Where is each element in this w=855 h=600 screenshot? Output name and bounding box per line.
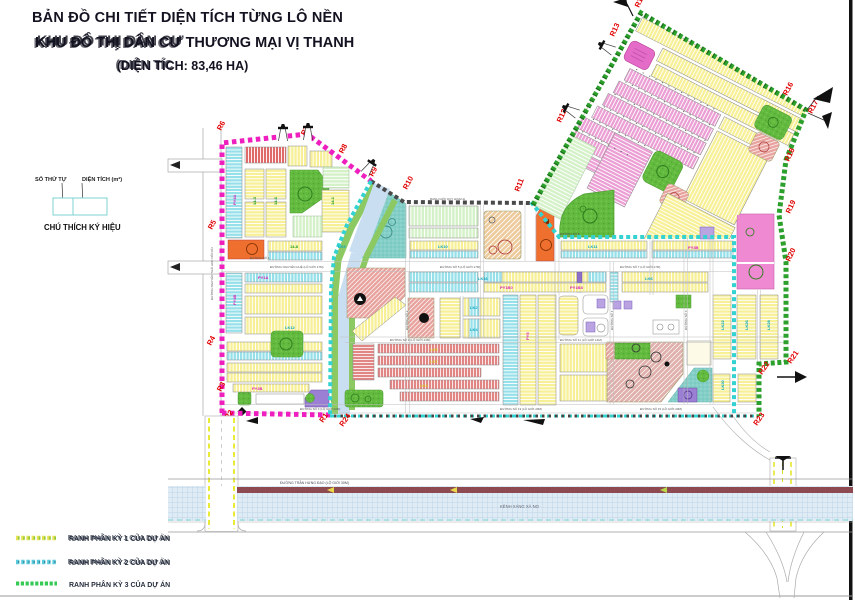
svg-text:RANH PHÂN KỲ 2 CỦA DỰ ÁN: RANH PHÂN KỲ 2 CỦA DỰ ÁN — [68, 557, 169, 566]
svg-text:RANH PHÂN KỲ 3 CỦA DỰ ÁN: RANH PHÂN KỲ 3 CỦA DỰ ÁN — [69, 580, 170, 589]
svg-text:14-8: 14-8 — [290, 244, 299, 249]
svg-text:KHU ĐÔ THỊ DÂN CƯ: KHU ĐÔ THỊ DÂN CƯ — [34, 34, 182, 52]
svg-text:ĐƯỜNG SỐ 3 (LỘ GIỚI 20M): ĐƯỜNG SỐ 3 (LỘ GIỚI 20M) — [300, 406, 340, 411]
svg-text:RANH GIỚI QUY HOẠCH: RANH GIỚI QUY HOẠCH — [430, 196, 465, 201]
svg-text:CHÚ THÍCH KÝ HIỆU: CHÚ THÍCH KÝ HIỆU — [44, 223, 121, 232]
svg-text:PY3B: PY3B — [688, 245, 699, 250]
svg-text:LK7: LK7 — [430, 359, 438, 364]
svg-text:ĐƯỜNG SỐ 9 (LỘ GIỚI 14M): ĐƯỜNG SỐ 9 (LỘ GIỚI 14M) — [390, 337, 430, 342]
svg-text:LK6: LK6 — [645, 276, 653, 281]
svg-text:14-3: 14-3 — [252, 196, 257, 205]
svg-text:BẢN ĐỒ CHI TIẾT DIỆN TÍCH TỪNG: BẢN ĐỒ CHI TIẾT DIỆN TÍCH TỪNG LÔ NỀN — [32, 8, 343, 26]
svg-text:LK3: LK3 — [420, 383, 428, 388]
svg-text:ĐƯỜNG TRẦN HƯNG ĐẠO (LỘ GIỚI 3: ĐƯỜNG TRẦN HƯNG ĐẠO (LỘ GIỚI 30M) — [280, 480, 349, 485]
svg-text:ĐƯỜNG NGUYỄN THÁI HỌC NỐI DÀI: ĐƯỜNG NGUYỄN THÁI HỌC NỐI DÀI — [209, 247, 214, 300]
svg-text:ĐƯỜNG SỐ 11 (LỘ GIỚI 14M): ĐƯỜNG SỐ 11 (LỘ GIỚI 14M) — [560, 337, 602, 342]
svg-text:14-6: 14-6 — [273, 196, 278, 205]
svg-text:ĐƯỜNG SỐ 15 (LỘ GIỚI 20M): ĐƯỜNG SỐ 15 (LỘ GIỚI 20M) — [640, 406, 682, 411]
svg-text:ĐƯỜNG SỐ 7 (LỘ GIỚI 17M): ĐƯỜNG SỐ 7 (LỘ GIỚI 17M) — [620, 264, 660, 269]
svg-text:ĐƯỜNG SỐ 2: ĐƯỜNG SỐ 2 — [404, 310, 409, 330]
svg-text:PY1A: PY1A — [258, 275, 269, 280]
svg-text:PY5: PY5 — [525, 332, 530, 340]
svg-text:LK28: LK28 — [766, 319, 771, 330]
svg-text:ĐƯỜNG SỐ 1: ĐƯỜNG SỐ 1 — [250, 255, 270, 260]
svg-text:PY2B: PY2B — [252, 386, 263, 391]
svg-text:ĐƯỜNG SỐ 5 (LỘ GIỚI 17M): ĐƯỜNG SỐ 5 (LỘ GIỚI 17M) — [440, 264, 480, 269]
svg-text:LK5: LK5 — [430, 347, 438, 352]
svg-text:PY1B8: PY1B8 — [570, 285, 583, 290]
svg-text:SỐ THỨ TỰ: SỐ THỨ TỰ — [35, 176, 67, 183]
svg-text:LK4: LK4 — [470, 327, 478, 332]
svg-text:KÊNH XÁNG XÀ NO: KÊNH XÁNG XÀ NO — [500, 504, 540, 509]
svg-text:ĐƯỜNG SỐ 8: ĐƯỜNG SỐ 8 — [560, 231, 580, 236]
svg-text:ĐƯỜNG SỐ 13 (LỘ GIỚI 20M): ĐƯỜNG SỐ 13 (LỘ GIỚI 20M) — [500, 406, 542, 411]
svg-text:LK12: LK12 — [285, 325, 296, 330]
svg-text:LK22: LK22 — [720, 319, 725, 330]
svg-text:LK10: LK10 — [438, 244, 449, 249]
svg-text:RANH PHÂN KỲ 1 CỦA DỰ ÁN: RANH PHÂN KỲ 1 CỦA DỰ ÁN — [68, 533, 169, 542]
svg-text:ĐƯỜNG SỐ 6: ĐƯỜNG SỐ 6 — [683, 310, 688, 330]
svg-text:PY4B: PY4B — [232, 294, 237, 305]
svg-text:(DIỆN TÍC: (DIỆN TÍC — [116, 57, 174, 72]
svg-text:DIỆN TÍCH (m²): DIỆN TÍCH (m²) — [82, 175, 122, 183]
svg-text:LK2: LK2 — [470, 305, 478, 310]
svg-text:LK16: LK16 — [478, 276, 489, 281]
svg-text:ĐƯỜNG SỐ 4: ĐƯỜNG SỐ 4 — [609, 310, 614, 330]
svg-text:LK11: LK11 — [588, 244, 598, 249]
svg-text:LK30: LK30 — [720, 379, 725, 390]
svg-text:PY4A: PY4A — [232, 194, 237, 205]
svg-text:14-1: 14-1 — [330, 196, 335, 205]
svg-text:LK9: LK9 — [338, 244, 346, 249]
svg-text:PY1B0: PY1B0 — [500, 285, 513, 290]
svg-text:LK26: LK26 — [744, 319, 749, 330]
svg-text:ĐƯỜNG NGUYỄN HUỆ (LỘ GIỚI 17M): ĐƯỜNG NGUYỄN HUỆ (LỘ GIỚI 17M) — [270, 264, 324, 269]
